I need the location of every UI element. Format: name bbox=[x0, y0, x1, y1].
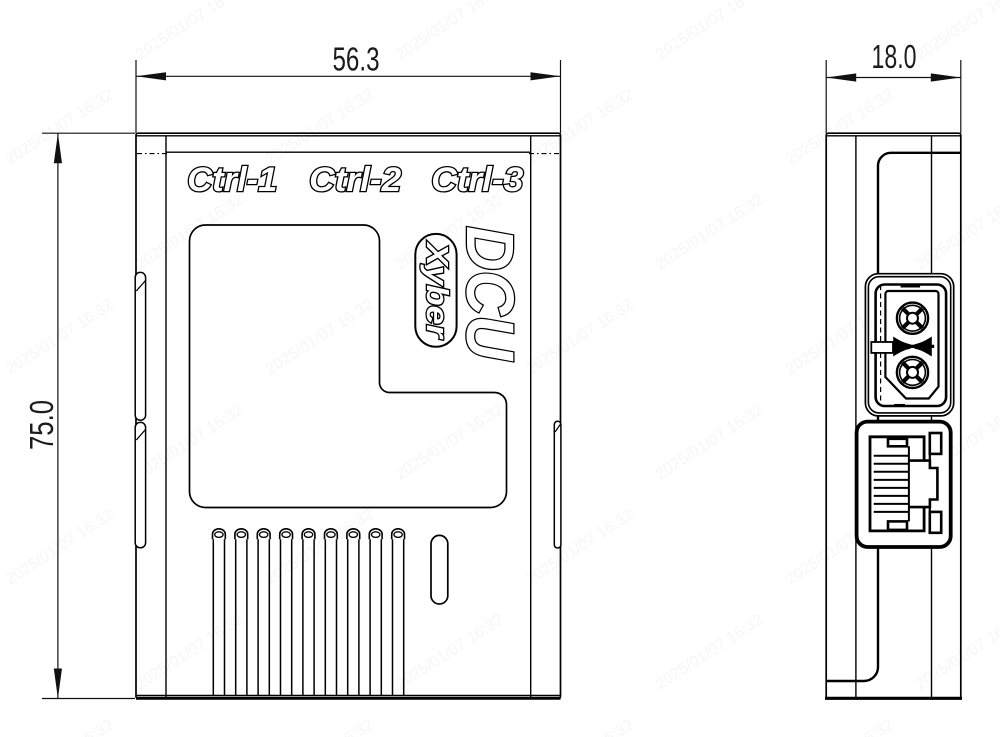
svg-text:Ctrl-2: Ctrl-2 bbox=[309, 161, 401, 199]
svg-text:DCU: DCU bbox=[452, 226, 527, 361]
svg-text:Xyber: Xyber bbox=[420, 241, 455, 340]
svg-text:56.3: 56.3 bbox=[333, 41, 380, 78]
svg-text:Ctrl-1: Ctrl-1 bbox=[187, 161, 277, 199]
svg-text:18.0: 18.0 bbox=[872, 38, 917, 75]
svg-text:75.0: 75.0 bbox=[23, 400, 60, 450]
svg-text:Ctrl-3: Ctrl-3 bbox=[431, 161, 523, 199]
